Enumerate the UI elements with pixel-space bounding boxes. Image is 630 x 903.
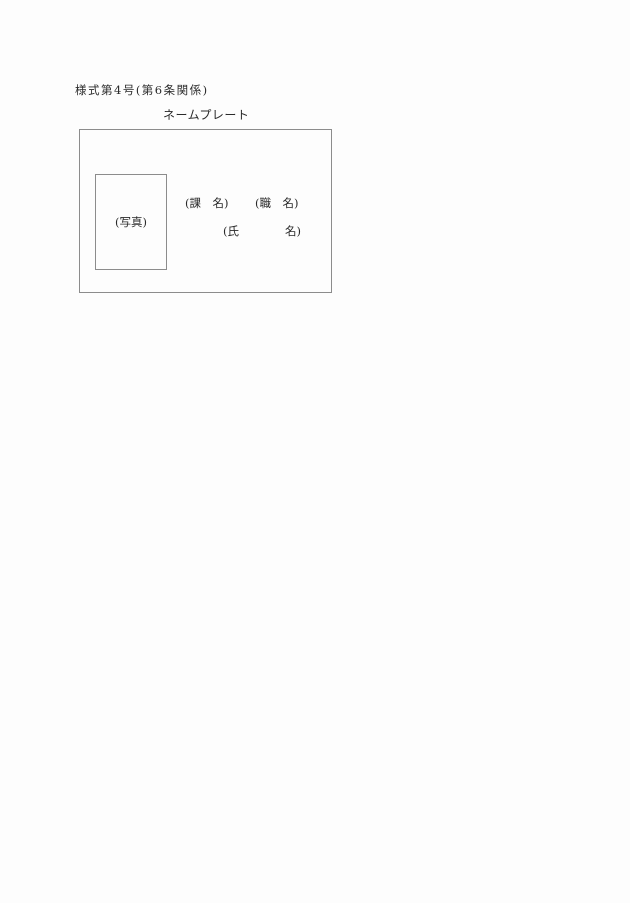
form-number-label: 様式第4号(第6条関係): [75, 82, 209, 98]
position-name-label: (職 名): [255, 196, 298, 210]
photo-label: (写真): [115, 214, 147, 230]
nameplate-frame: (写真) (課 名) (職 名) (氏 名): [79, 129, 332, 293]
person-name-label: (氏 名): [223, 224, 301, 238]
section-name-label: (課 名): [185, 196, 228, 210]
nameplate-title: ネームプレート: [163, 106, 249, 123]
document-page: 様式第4号(第6条関係) ネームプレート (写真) (課 名) (職 名) (氏…: [0, 0, 630, 903]
photo-box: (写真): [95, 174, 167, 270]
